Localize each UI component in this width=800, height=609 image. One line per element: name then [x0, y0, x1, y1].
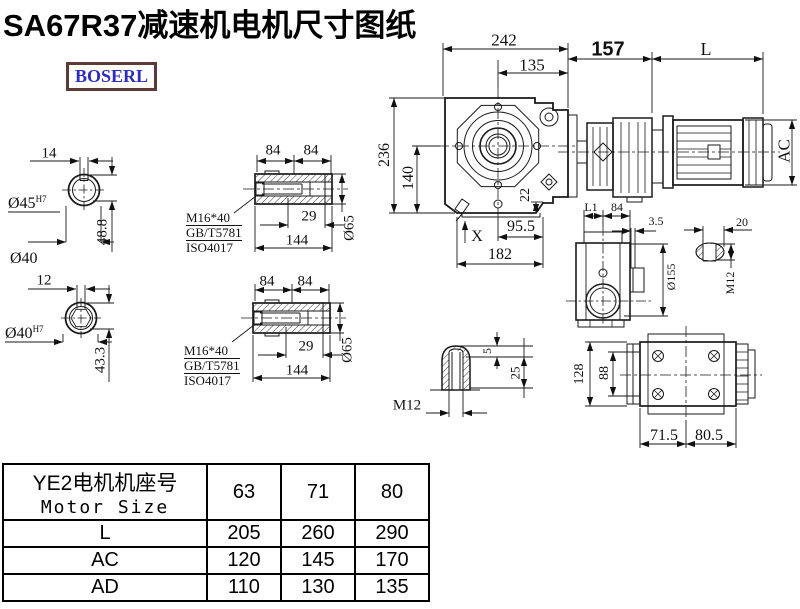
brand-logo: BOSERL	[66, 62, 157, 91]
page-title: SA67R37减速机电机尺寸图纸	[3, 0, 416, 45]
dim-total-len-a: 144	[286, 234, 309, 249]
dim-bore-b: Ø40H7	[5, 326, 44, 342]
dim-foot-to-center: 95.5	[507, 219, 535, 235]
dim-overall-width: 242	[491, 32, 517, 49]
table-header-en: Motor Size	[4, 497, 206, 518]
drawing-page: SA67R37减速机电机尺寸图纸 BOSERL 14 Ø45H7 48.8 Ø4…	[0, 0, 800, 609]
dim-center-to-flange: 135	[519, 57, 545, 74]
dim-keyway-width-a: 14	[42, 147, 57, 162]
dim-bottom-overall-height: 128	[573, 364, 587, 385]
table-col-80: 80	[355, 464, 429, 520]
x-mark: X	[471, 229, 483, 245]
dim-l1: L1	[584, 201, 597, 213]
dim-motor-length: L	[701, 40, 712, 58]
dim-key-depth: 25	[509, 367, 522, 380]
dim-bore-a-value: Ø45	[8, 195, 36, 212]
bolt-spec-a-std1: GB/T5781	[186, 226, 242, 241]
dim-bottom-left-len: 71.5	[650, 428, 678, 444]
dim-motor-dia: AC	[776, 139, 793, 163]
dim-bore-a-fit: H7	[36, 194, 47, 204]
row-label-AD: AD	[3, 574, 207, 601]
dim-outer-dia-shaft-a: Ø65	[343, 215, 358, 241]
dim-foot-height: 22	[519, 188, 533, 202]
row-label-L: L	[3, 520, 207, 547]
dim-flange-width: 84	[611, 201, 623, 213]
row-L-80: 290	[355, 520, 429, 547]
front-view-linework	[389, 43, 797, 268]
dim-bore-a: Ø45H7	[8, 196, 47, 212]
row-AC-80: 170	[355, 547, 429, 574]
row-AD-71: 130	[281, 574, 355, 601]
dim-bolt-span: 88	[598, 366, 612, 380]
dim-gear-unit-length: 157	[591, 39, 624, 62]
dim-key-height: 5	[481, 348, 493, 354]
dim-bottom-right-len: 80.5	[695, 428, 723, 444]
dim-flange-dia: Ø155	[665, 264, 677, 291]
dim-thread-side: M12	[724, 272, 736, 295]
dim-depth-b: 43.3	[94, 347, 109, 373]
dim-total-len-b: 144	[286, 364, 309, 379]
dim-keyway-width-b: 12	[37, 274, 52, 289]
table-row-L: L 205 260 290	[3, 520, 429, 547]
row-AD-63: 110	[207, 574, 281, 601]
bolt-spec-a: M16*40 GB/T5781 ISO4017	[186, 211, 242, 255]
dim-half-len-2-b: 84	[298, 275, 313, 290]
bolt-spec-b-thread: M16*40	[184, 344, 240, 359]
bolt-spec-a-std2: ISO4017	[186, 241, 242, 255]
dim-bolt-len-b: 29	[299, 340, 314, 355]
dim-bore-b-fit: H7	[33, 324, 44, 334]
row-L-71: 260	[281, 520, 355, 547]
table-row-AC: AC 120 145 170	[3, 547, 429, 574]
dim-overall-height: 236	[377, 143, 393, 167]
row-AD-80: 135	[355, 574, 429, 601]
dim-plate-thickness: 3.5	[649, 215, 664, 227]
dim-key-length: 20	[736, 216, 748, 228]
table-header-row: YE2电机机座号 Motor Size 63 71 80	[3, 464, 429, 520]
dim-bolt-len-a: 29	[302, 210, 317, 225]
dim-depth-a: 48.8	[96, 219, 111, 245]
dim-outer-dia-shaft-b: Ø65	[341, 337, 356, 363]
table-header-cell: YE2电机机座号 Motor Size	[3, 464, 207, 520]
table-col-71: 71	[281, 464, 355, 520]
dim-bore-b-value: Ø40	[5, 325, 33, 342]
bolt-spec-b-std2: ISO4017	[184, 374, 240, 388]
bolt-spec-b: M16*40 GB/T5781 ISO4017	[184, 344, 240, 388]
bolt-spec-b-std1: GB/T5781	[184, 359, 240, 374]
table-col-63: 63	[207, 464, 281, 520]
dim-half-len-1-b: 84	[260, 275, 275, 290]
row-AC-71: 145	[281, 547, 355, 574]
dim-half-len-2-a: 84	[304, 144, 319, 159]
dim-base-width: 182	[488, 247, 512, 263]
row-L-63: 205	[207, 520, 281, 547]
motor-size-table: YE2电机机座号 Motor Size 63 71 80 L 205 260 2…	[2, 463, 430, 602]
dim-half-len-1-a: 84	[266, 144, 281, 159]
dim-thread-key: M12	[393, 399, 421, 414]
table-header-cn: YE2电机机座号	[4, 467, 206, 497]
row-AC-63: 120	[207, 547, 281, 574]
row-label-AC: AC	[3, 547, 207, 574]
bolt-spec-a-thread: M16*40	[186, 211, 242, 226]
dim-center-height: 140	[401, 166, 417, 190]
table-row-AD: AD 110 130 135	[3, 574, 429, 601]
dim-outer-dia-a: Ø40	[10, 251, 38, 267]
